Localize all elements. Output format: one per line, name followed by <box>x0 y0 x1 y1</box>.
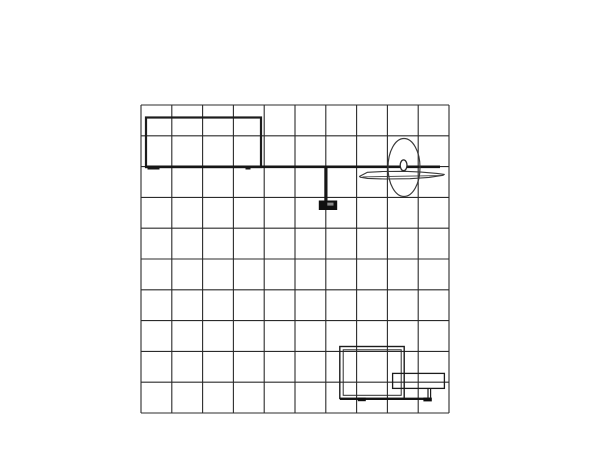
base-foot-left <box>358 398 366 402</box>
grid-wall <box>141 105 449 413</box>
booth-line-diagram <box>0 0 600 463</box>
header-panel <box>146 118 261 168</box>
monitor-screen-detail <box>327 203 333 206</box>
monitor-pole <box>324 167 327 201</box>
surfboard-shelf-outline <box>360 171 445 179</box>
rail-foot-left <box>148 168 160 170</box>
rail-knob <box>400 160 407 171</box>
rail-foot-mid <box>246 168 251 170</box>
surfboard-shelf-inner-line <box>363 176 442 177</box>
counter-outer <box>340 347 404 399</box>
drawing-canvas <box>0 0 600 463</box>
